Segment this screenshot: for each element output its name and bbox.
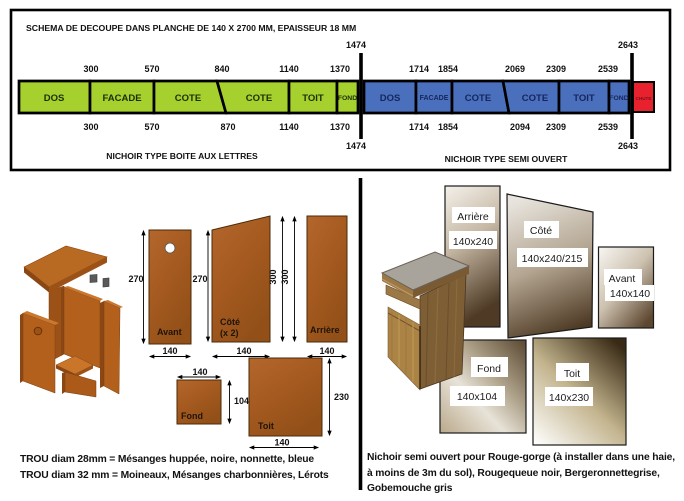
svg-text:1474: 1474 — [346, 141, 366, 151]
svg-text:2539: 2539 — [598, 122, 618, 132]
svg-text:140: 140 — [274, 438, 289, 448]
svg-text:2069: 2069 — [505, 64, 525, 74]
svg-text:Toit: Toit — [564, 368, 580, 380]
svg-text:270: 270 — [128, 274, 143, 284]
svg-text:2309: 2309 — [546, 64, 566, 74]
svg-text:300: 300 — [83, 64, 98, 74]
svg-text:Nichoir semi ouvert pour Rouge: Nichoir semi ouvert pour Rouge-gorge (à … — [367, 452, 675, 463]
svg-text:2094: 2094 — [510, 122, 530, 132]
svg-text:1140: 1140 — [279, 64, 299, 74]
svg-text:DOS: DOS — [380, 93, 401, 104]
svg-text:1854: 1854 — [438, 122, 458, 132]
svg-text:Côté: Côté — [530, 225, 552, 237]
svg-text:300: 300 — [83, 122, 98, 132]
svg-text:230: 230 — [334, 392, 349, 402]
svg-text:Avant: Avant — [157, 327, 182, 337]
svg-text:1854: 1854 — [438, 64, 458, 74]
svg-text:FACADE: FACADE — [102, 93, 141, 104]
svg-text:1714: 1714 — [409, 64, 429, 74]
svg-text:140x140: 140x140 — [610, 288, 650, 300]
svg-text:FOND: FOND — [338, 95, 357, 102]
svg-text:Avant: Avant — [609, 273, 636, 285]
svg-text:Gobemouche gris: Gobemouche gris — [367, 483, 453, 494]
svg-text:Fond: Fond — [477, 363, 501, 375]
svg-text:2643: 2643 — [618, 40, 638, 50]
svg-text:FACADE: FACADE — [420, 95, 449, 102]
svg-text:2539: 2539 — [598, 64, 618, 74]
svg-text:1474: 1474 — [346, 40, 366, 50]
svg-text:SCHEMA DE DECOUPE DANS PLANCHE: SCHEMA DE DECOUPE DANS PLANCHE DE 140 X … — [26, 23, 356, 33]
svg-text:1140: 1140 — [279, 122, 299, 132]
svg-text:COTE: COTE — [175, 93, 201, 104]
svg-text:FOND: FOND — [609, 95, 628, 102]
svg-text:1714: 1714 — [409, 122, 429, 132]
svg-text:NICHOIR TYPE BOITE AUX LETTRES: NICHOIR TYPE BOITE AUX LETTRES — [106, 151, 258, 161]
svg-text:TROU diam 32 mm = Moineaux, Mé: TROU diam 32 mm = Moineaux, Mésanges cha… — [20, 470, 329, 481]
svg-text:Côté: Côté — [220, 317, 240, 327]
svg-text:NICHOIR TYPE SEMI OUVERT: NICHOIR TYPE SEMI OUVERT — [445, 154, 568, 164]
svg-text:(x 2): (x 2) — [220, 328, 239, 338]
svg-text:840: 840 — [214, 64, 229, 74]
svg-text:à moins de 3m du sol), Rougequ: à moins de 3m du sol), Rougequeue noir, … — [367, 468, 660, 479]
svg-text:270: 270 — [192, 274, 207, 284]
svg-text:Arrière: Arrière — [457, 211, 489, 223]
svg-text:Toit: Toit — [258, 421, 274, 431]
svg-text:TOIT: TOIT — [573, 93, 595, 104]
svg-text:140x104: 140x104 — [457, 391, 497, 403]
svg-text:300: 300 — [280, 269, 290, 284]
svg-text:140x230: 140x230 — [549, 392, 589, 404]
svg-text:1370: 1370 — [330, 64, 350, 74]
svg-text:DOS: DOS — [44, 93, 65, 104]
svg-text:140x240: 140x240 — [453, 236, 493, 248]
svg-text:CHUTE: CHUTE — [636, 96, 652, 101]
svg-text:570: 570 — [144, 64, 159, 74]
svg-text:TOIT: TOIT — [302, 93, 324, 104]
svg-text:570: 570 — [144, 122, 159, 132]
svg-text:140: 140 — [162, 346, 177, 356]
svg-text:2643: 2643 — [618, 141, 638, 151]
svg-text:104: 104 — [234, 396, 249, 406]
svg-text:COTE: COTE — [465, 93, 491, 104]
svg-text:COTE: COTE — [246, 93, 272, 104]
svg-text:140: 140 — [192, 367, 207, 377]
svg-text:2309: 2309 — [546, 122, 566, 132]
svg-text:300: 300 — [268, 269, 278, 284]
svg-text:Fond: Fond — [181, 411, 203, 421]
svg-text:Arrière: Arrière — [310, 325, 340, 335]
svg-text:1370: 1370 — [330, 122, 350, 132]
svg-text:COTE: COTE — [522, 93, 548, 104]
svg-text:140x240/215: 140x240/215 — [522, 253, 583, 265]
svg-text:140: 140 — [236, 346, 251, 356]
svg-text:140: 140 — [319, 346, 334, 356]
svg-text:TROU diam 28mm = Mésanges hupp: TROU diam 28mm = Mésanges huppée, noire,… — [20, 454, 314, 465]
svg-text:870: 870 — [220, 122, 235, 132]
